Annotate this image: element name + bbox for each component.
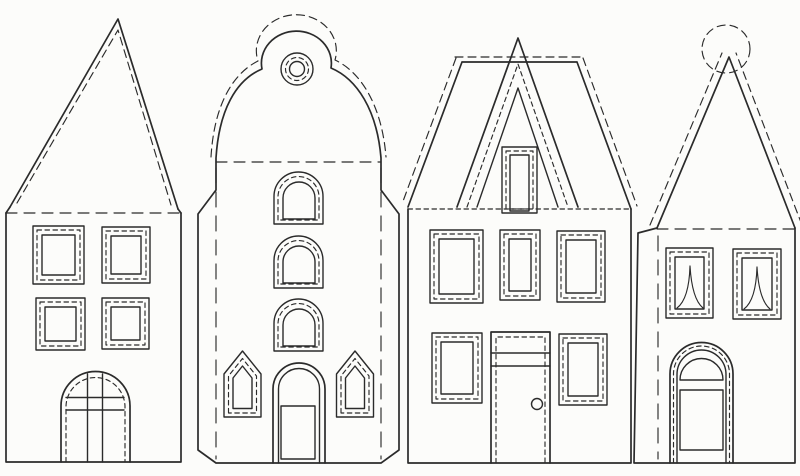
gable-band [457,38,578,207]
house-templates-canvas [0,0,800,476]
eave-connectors [6,207,181,213]
house-template-1 [6,19,181,462]
door-transom-band [491,353,550,366]
spire-cut-dashed [650,53,800,225]
curtain-shape [744,267,770,309]
arched-door [273,363,325,463]
spire-outline [657,57,795,228]
window-bottom-right [559,334,607,405]
gable-window [502,147,537,213]
front-door [491,332,550,463]
pointed-window-left [224,351,261,417]
window-upper-left [33,226,84,284]
house-template-3 [402,38,637,463]
arched-door-with-cross [61,372,130,463]
window-upper-right [102,227,150,283]
doorknob [532,399,543,410]
pointed-window-right [337,351,374,417]
door-fanlight [680,359,723,380]
door-fold-dashed [496,337,545,463]
door-fold-dashed [66,378,125,462]
door-inner-arch [279,368,320,463]
side-fold-dashed [216,168,381,459]
window-top-left [430,230,483,303]
door-panel [281,406,315,459]
window-top-middle [500,230,540,300]
arched-window-bottom [274,299,323,351]
house-template-2 [198,15,399,463]
template-sheet [0,0,800,476]
bell-cut-dashed [211,15,386,157]
arched-window-top [274,172,323,224]
roof-outline [10,19,178,209]
house-template-4 [634,25,800,463]
roof-fold-dashed [17,30,171,205]
door-outline [61,372,130,463]
door-cross-vertical [88,374,103,462]
body-outline [408,209,631,463]
window-lower-left [36,298,85,350]
curtain-window-right [733,249,781,319]
window-bottom-left [432,333,482,403]
gable-outer-triangle [457,38,578,207]
ring-ornament [281,53,313,85]
door-outline [491,332,550,463]
curtain-shape [677,266,703,308]
curtain-window-left [666,248,713,318]
door-panel [680,390,723,450]
roof-outline [408,62,631,209]
arched-window-middle [274,236,323,288]
body-outline [6,213,181,462]
window-lower-right [102,298,149,349]
window-top-right [557,231,605,302]
door-fold-dashed [674,346,730,463]
arched-door-with-fanlight [670,343,733,464]
door-cross-horizontal [66,398,124,411]
